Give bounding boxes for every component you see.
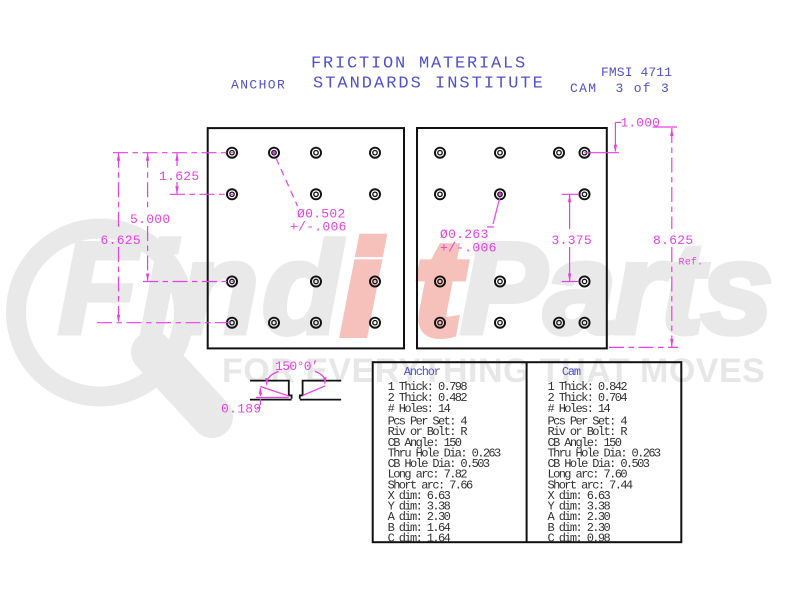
svg-text:150°0’: 150°0’: [275, 359, 318, 374]
svg-text:STANDARDS INSTITUTE: STANDARDS INSTITUTE: [313, 75, 545, 94]
svg-text:6.625: 6.625: [101, 233, 142, 248]
svg-text:Ref.: Ref.: [679, 257, 704, 269]
svg-text:+/-.006: +/-.006: [440, 241, 497, 256]
svg-text:Cam: Cam: [562, 365, 581, 379]
svg-text:FRICTION MATERIALS: FRICTION MATERIALS: [311, 55, 527, 74]
svg-text:0.189: 0.189: [221, 402, 262, 417]
svg-text:5.000: 5.000: [130, 212, 171, 227]
svg-text:8.625: 8.625: [653, 233, 694, 248]
svg-text:1.625: 1.625: [159, 169, 200, 184]
svg-text:1.000: 1.000: [621, 116, 661, 131]
svg-text:C dim: 1.64: C dim: 1.64: [388, 531, 451, 545]
svg-text:Anchor: Anchor: [404, 365, 441, 379]
svg-text:C dim: 0.98: C dim: 0.98: [548, 531, 611, 545]
svg-text:FMSI 4711: FMSI 4711: [601, 65, 672, 80]
svg-text:ANCHOR: ANCHOR: [231, 77, 286, 92]
svg-text:Parts: Parts: [460, 215, 770, 361]
svg-text:3.375: 3.375: [552, 233, 593, 248]
svg-text:+/-.006: +/-.006: [290, 220, 347, 235]
svg-text:CAM 3 of 3: CAM 3 of 3: [570, 81, 670, 96]
